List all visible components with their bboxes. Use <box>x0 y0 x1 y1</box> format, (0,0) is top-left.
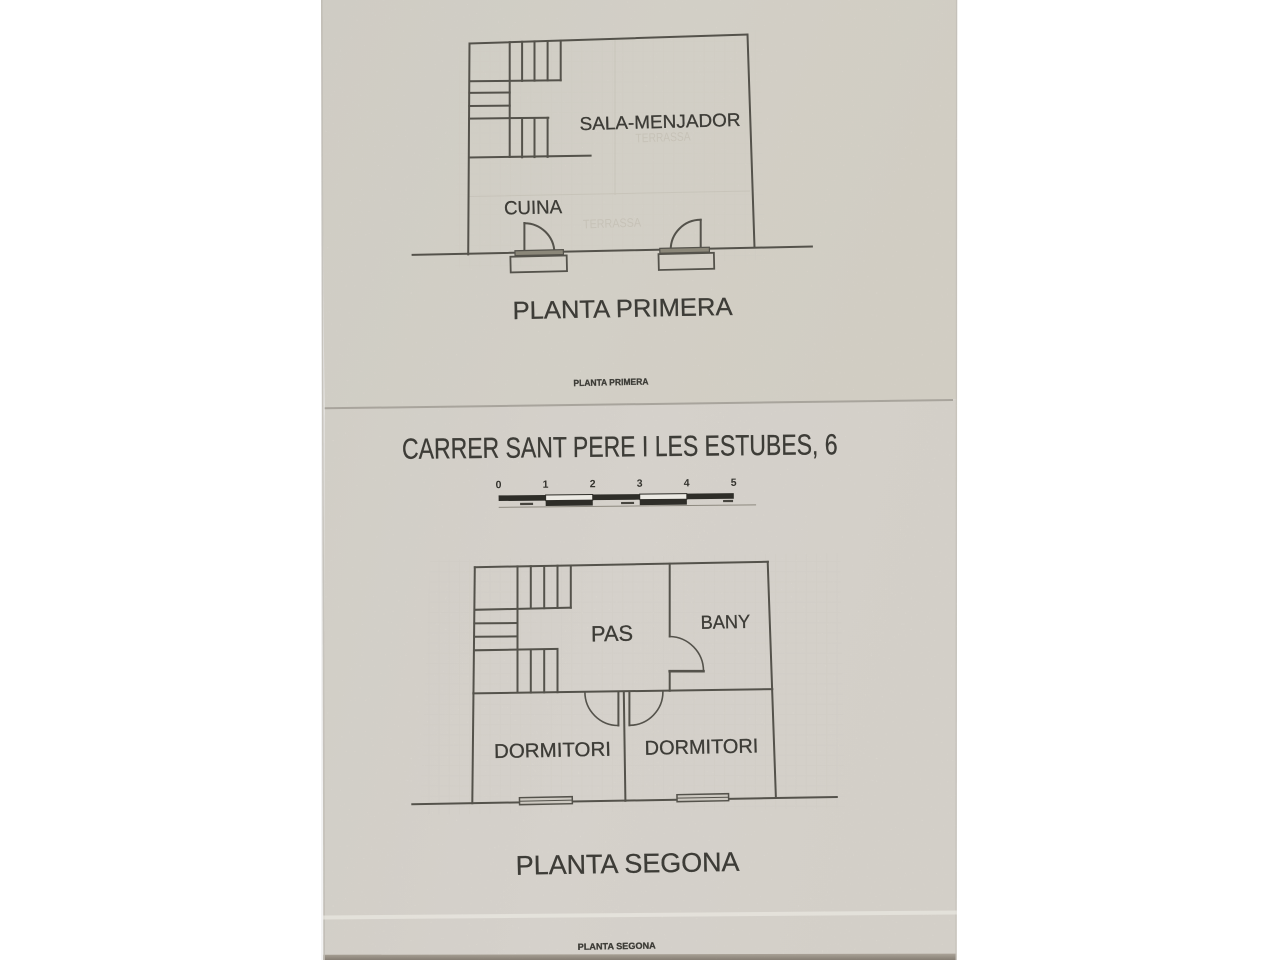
svg-text:TERRASSA: TERRASSA <box>583 215 642 231</box>
svg-text:DORMITORI: DORMITORI <box>494 739 611 763</box>
svg-text:DORMITORI: DORMITORI <box>644 735 758 759</box>
svg-text:0: 0 <box>496 479 502 491</box>
svg-text:4: 4 <box>684 477 690 489</box>
svg-text:5: 5 <box>731 477 737 489</box>
svg-text:PAS: PAS <box>591 621 634 647</box>
svg-text:1: 1 <box>543 479 549 491</box>
svg-text:BANY: BANY <box>700 612 750 634</box>
svg-text:PLANTA PRIMERA: PLANTA PRIMERA <box>573 377 649 389</box>
svg-text:PLANTA PRIMERA: PLANTA PRIMERA <box>512 293 733 325</box>
svg-text:SALA-MENJADOR: SALA-MENJADOR <box>579 109 740 134</box>
svg-text:CARRER SANT PERE I LES ESTUBES: CARRER SANT PERE I LES ESTUBES, 6 <box>402 429 838 466</box>
svg-text:PLANTA SEGONA: PLANTA SEGONA <box>516 847 740 881</box>
svg-text:3: 3 <box>637 478 643 490</box>
svg-text:2: 2 <box>590 478 596 490</box>
svg-text:PLANTA SEGONA: PLANTA SEGONA <box>578 941 657 952</box>
svg-text:CUINA: CUINA <box>504 197 563 220</box>
